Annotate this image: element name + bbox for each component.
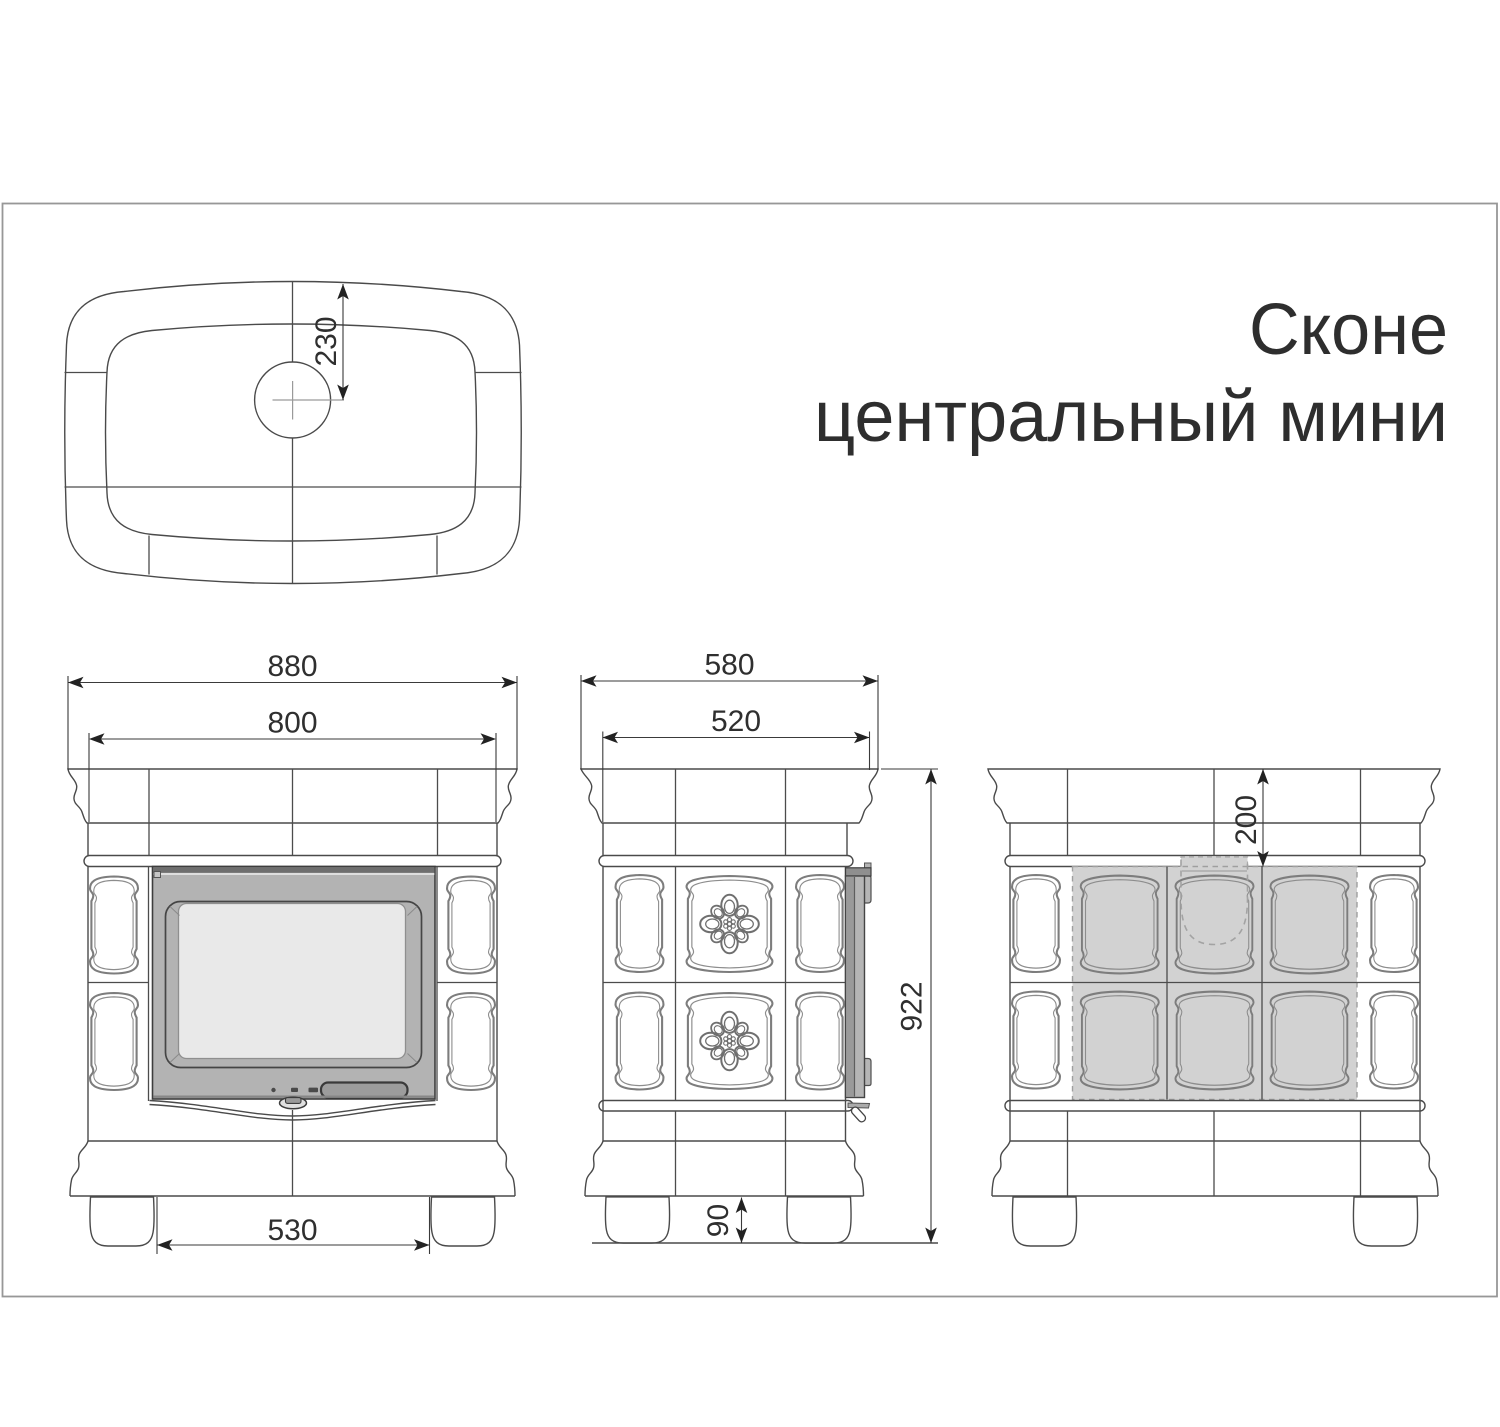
svg-text:520: 520 bbox=[711, 705, 761, 738]
svg-text:центральный мини: центральный мини bbox=[814, 377, 1448, 457]
svg-text:922: 922 bbox=[896, 981, 929, 1031]
svg-text:230: 230 bbox=[310, 316, 343, 366]
svg-text:800: 800 bbox=[267, 707, 317, 740]
svg-text:530: 530 bbox=[267, 1214, 317, 1247]
svg-text:200: 200 bbox=[1230, 795, 1263, 845]
svg-text:90: 90 bbox=[702, 1204, 735, 1237]
svg-text:580: 580 bbox=[704, 649, 754, 682]
svg-text:Сконе: Сконе bbox=[1249, 290, 1448, 370]
svg-text:880: 880 bbox=[267, 650, 317, 683]
